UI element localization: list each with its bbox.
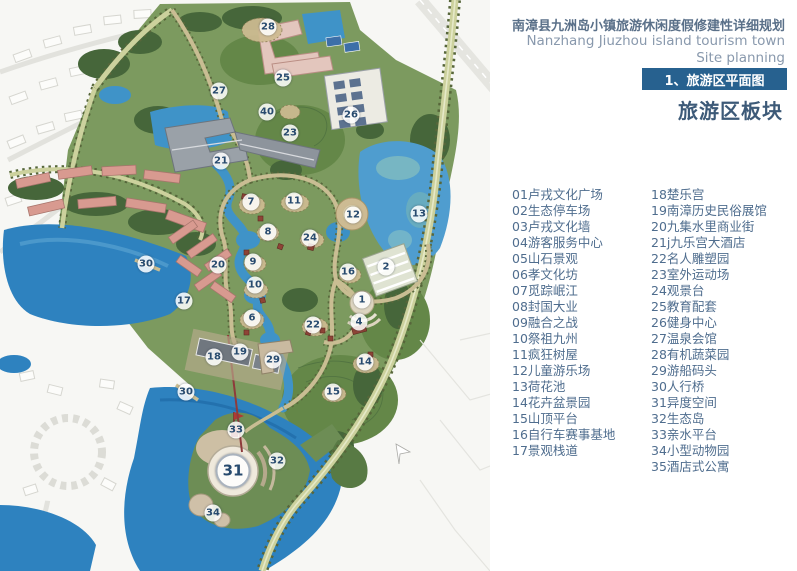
legend-item-label: j九乐宫大酒店 <box>667 235 745 251</box>
legend-item-number: 19 <box>651 203 667 219</box>
legend-item: 24 观景台 <box>651 283 767 299</box>
legend-item-number: 31 <box>651 395 667 411</box>
legend-column-1: 01 卢戎文化广场 02 生态停车场 03 卢戎文化墙 04 游客服务中心 <box>512 187 615 459</box>
legend-item: 10 祭祖九州 <box>512 331 615 347</box>
legend-item-number: 07 <box>512 283 528 299</box>
legend-item: 11 疯狂树屋 <box>512 347 615 363</box>
legend-item: 07 觅踪岷江 <box>512 283 615 299</box>
legend-item-label: 九集水里商业街 <box>667 219 755 235</box>
legend-item: 02 生态停车场 <box>512 203 615 219</box>
legend-item-number: 27 <box>651 331 667 347</box>
legend-item-label: 生态停车场 <box>528 203 591 219</box>
legend-item-number: 21 <box>651 235 667 251</box>
legend-item: 17 景观栈道 <box>512 443 615 459</box>
legend-item-number: 34 <box>651 443 667 459</box>
legend-item-label: 有机蔬菜园 <box>667 347 730 363</box>
legend-item-number: 23 <box>651 267 667 283</box>
legend-item-number: 16 <box>512 427 528 443</box>
legend-item: 29 游船码头 <box>651 363 767 379</box>
section-subtitle: 旅游区板块 <box>678 95 783 124</box>
legend-item: 35 酒店式公寓 <box>651 459 767 475</box>
legend-item-label: 楚乐宫 <box>667 187 705 203</box>
legend-item-number: 01 <box>512 187 528 203</box>
legend-item: 12 儿童游乐场 <box>512 363 615 379</box>
legend-item-label: 花卉盆景园 <box>528 395 591 411</box>
legend-item: 13 荷花池 <box>512 379 615 395</box>
legend-item-label: 自行车赛事基地 <box>528 427 616 443</box>
legend-item: 04 游客服务中心 <box>512 235 615 251</box>
legend-item-label: 景观栈道 <box>528 443 578 459</box>
legend-item-label: 孝文化坊 <box>528 267 578 283</box>
legend-item-label: 人行桥 <box>667 379 705 395</box>
legend-item: 28 有机蔬菜园 <box>651 347 767 363</box>
legend-item: 30 人行桥 <box>651 379 767 395</box>
legend-item-number: 26 <box>651 315 667 331</box>
legend-item-number: 35 <box>651 459 667 475</box>
legend-column-2: 18 楚乐宫 19 南漳历史民俗展馆 20 九集水里商业街 21 j九乐宫大酒店 <box>651 187 767 475</box>
legend-item: 05 山石景观 <box>512 251 615 267</box>
legend-item-number: 24 <box>651 283 667 299</box>
legend-item: 33 亲水平台 <box>651 427 767 443</box>
legend-item-label: 教育配套 <box>667 299 717 315</box>
legend-item: 15 山顶平台 <box>512 411 615 427</box>
legend-item: 09 融合之战 <box>512 315 615 331</box>
legend-item-number: 17 <box>512 443 528 459</box>
project-title-cn: 南漳县九洲岛小镇旅游休闲度假修建性详细规划 <box>512 15 785 34</box>
legend-item-number: 25 <box>651 299 667 315</box>
legend-item: 18 楚乐宫 <box>651 187 767 203</box>
legend-item-number: 15 <box>512 411 528 427</box>
legend-item-number: 04 <box>512 235 528 251</box>
legend-item-label: 室外运动场 <box>667 267 730 283</box>
legend-item-label: 游船码头 <box>667 363 717 379</box>
legend-item-label: 祭祖九州 <box>528 331 578 347</box>
legend-item-label: 荷花池 <box>528 379 566 395</box>
site-plan-svg <box>0 0 490 571</box>
legend-item-label: 健身中心 <box>667 315 717 331</box>
legend-item-label: 南漳历史民俗展馆 <box>667 203 767 219</box>
project-title-en-2: Site planning <box>696 50 785 66</box>
legend-item-label: 儿童游乐场 <box>528 363 591 379</box>
legend-item-number: 14 <box>512 395 528 411</box>
site-planning-sheet: 2825274026232171112138249203021610171642… <box>0 0 797 571</box>
legend-item-number: 10 <box>512 331 528 347</box>
legend-item-label: 名人雕塑园 <box>667 251 730 267</box>
section-banner: 1、旅游区平面图 <box>642 68 787 90</box>
legend-item-number: 22 <box>651 251 667 267</box>
legend-item-label: 生态岛 <box>667 411 705 427</box>
legend-item: 08 封国大业 <box>512 299 615 315</box>
legend-item-number: 02 <box>512 203 528 219</box>
legend-item-label: 亲水平台 <box>667 427 717 443</box>
legend-item: 32 生态岛 <box>651 411 767 427</box>
legend-item-label: 酒店式公寓 <box>667 459 730 475</box>
legend-item-label: 疯狂树屋 <box>528 347 578 363</box>
legend-item-number: 20 <box>651 219 667 235</box>
legend-item-number: 11 <box>512 347 528 363</box>
legend-item: 20 九集水里商业街 <box>651 219 767 235</box>
legend-item-number: 09 <box>512 315 528 331</box>
legend-item-number: 18 <box>651 187 667 203</box>
info-panel: 南漳县九洲岛小镇旅游休闲度假修建性详细规划 Nanzhang Jiuzhou i… <box>490 0 797 571</box>
legend-item: 23 室外运动场 <box>651 267 767 283</box>
legend-item-number: 05 <box>512 251 528 267</box>
legend-item-number: 29 <box>651 363 667 379</box>
legend-item: 27 温泉会馆 <box>651 331 767 347</box>
legend-item-label: 卢戎文化墙 <box>528 219 591 235</box>
legend-item: 01 卢戎文化广场 <box>512 187 615 203</box>
legend-item-number: 03 <box>512 219 528 235</box>
master-plan-map: 2825274026232171112138249203021610171642… <box>0 0 490 571</box>
legend-item: 06 孝文化坊 <box>512 267 615 283</box>
legend-item-label: 异度空间 <box>667 395 717 411</box>
legend-item-number: 33 <box>651 427 667 443</box>
legend-item-label: 山石景观 <box>528 251 578 267</box>
legend-item-number: 30 <box>651 379 667 395</box>
legend-item-label: 山顶平台 <box>528 411 578 427</box>
legend-item-label: 觅踪岷江 <box>528 283 578 299</box>
legend-item-number: 32 <box>651 411 667 427</box>
legend-item-label: 融合之战 <box>528 315 578 331</box>
legend-item-number: 06 <box>512 267 528 283</box>
legend-item: 19 南漳历史民俗展馆 <box>651 203 767 219</box>
legend-item-number: 12 <box>512 363 528 379</box>
legend-item-label: 游客服务中心 <box>528 235 603 251</box>
legend-item: 14 花卉盆景园 <box>512 395 615 411</box>
legend-item: 25 教育配套 <box>651 299 767 315</box>
legend-item-number: 08 <box>512 299 528 315</box>
legend-item-label: 小型动物园 <box>667 443 730 459</box>
legend-item: 21 j九乐宫大酒店 <box>651 235 767 251</box>
legend-item: 22 名人雕塑园 <box>651 251 767 267</box>
legend-item-label: 卢戎文化广场 <box>528 187 603 203</box>
legend-item: 03 卢戎文化墙 <box>512 219 615 235</box>
legend-item: 26 健身中心 <box>651 315 767 331</box>
legend-item-label: 温泉会馆 <box>667 331 717 347</box>
legend-item-number: 28 <box>651 347 667 363</box>
project-title-en-1: Nanzhang Jiuzhou island tourism town <box>526 33 785 49</box>
legend-item: 31 异度空间 <box>651 395 767 411</box>
legend-item-label: 观景台 <box>667 283 705 299</box>
legend-item: 34 小型动物园 <box>651 443 767 459</box>
legend-item-number: 13 <box>512 379 528 395</box>
legend-item-label: 封国大业 <box>528 299 578 315</box>
legend-item: 16 自行车赛事基地 <box>512 427 615 443</box>
